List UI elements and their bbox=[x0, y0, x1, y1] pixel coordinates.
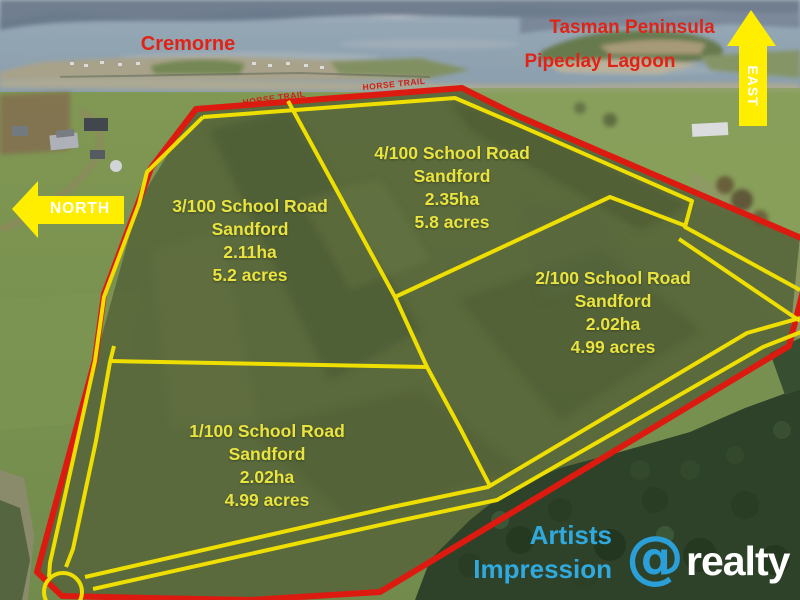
lot-2-area-ha: 2.02ha bbox=[498, 313, 728, 336]
watermark-line2: Impression bbox=[420, 552, 612, 586]
lot-2-label: 2/100 School Road Sandford 2.02ha 4.99 a… bbox=[498, 267, 728, 359]
artists-impression-watermark: Artists Impression bbox=[420, 518, 612, 586]
lot-1-area-acres: 4.99 acres bbox=[152, 489, 382, 512]
lot-4-address: 4/100 School Road bbox=[337, 142, 567, 165]
lot-4-area-ha: 2.35ha bbox=[337, 188, 567, 211]
lot-1-area-ha: 2.02ha bbox=[152, 466, 382, 489]
lot-3-area-ha: 2.11ha bbox=[135, 241, 365, 264]
lot-3-address: 3/100 School Road bbox=[135, 195, 365, 218]
lot-4-suburb: Sandford bbox=[337, 165, 567, 188]
lot-4-area-acres: 5.8 acres bbox=[337, 211, 567, 234]
watermark-line1: Artists bbox=[420, 518, 612, 552]
place-label-tasman-peninsula: Tasman Peninsula bbox=[532, 17, 732, 39]
lot-1-suburb: Sandford bbox=[152, 443, 382, 466]
realty-at-icon: @ bbox=[626, 526, 684, 588]
lot-3-label: 3/100 School Road Sandford 2.11ha 5.2 ac… bbox=[135, 195, 365, 287]
lot-1-address: 1/100 School Road bbox=[152, 420, 382, 443]
aerial-lot-map: Cremorne Tasman Peninsula Pipeclay Lagoo… bbox=[0, 0, 800, 600]
place-label-pipeclay-lagoon: Pipeclay Lagoon bbox=[500, 51, 700, 73]
lot-4-label: 4/100 School Road Sandford 2.35ha 5.8 ac… bbox=[337, 142, 567, 234]
realty-logo: @ realty bbox=[626, 526, 789, 588]
lot-2-address: 2/100 School Road bbox=[498, 267, 728, 290]
east-arrow-label: EAST bbox=[745, 54, 761, 118]
place-label-cremorne: Cremorne bbox=[108, 33, 268, 56]
lot-3-suburb: Sandford bbox=[135, 218, 365, 241]
lot-1-label: 1/100 School Road Sandford 2.02ha 4.99 a… bbox=[152, 420, 382, 512]
realty-logo-text: realty bbox=[686, 538, 789, 584]
north-arrow-label: NORTH bbox=[36, 200, 124, 218]
lot-3-area-acres: 5.2 acres bbox=[135, 264, 365, 287]
lot-2-suburb: Sandford bbox=[498, 290, 728, 313]
lot-2-area-acres: 4.99 acres bbox=[498, 336, 728, 359]
